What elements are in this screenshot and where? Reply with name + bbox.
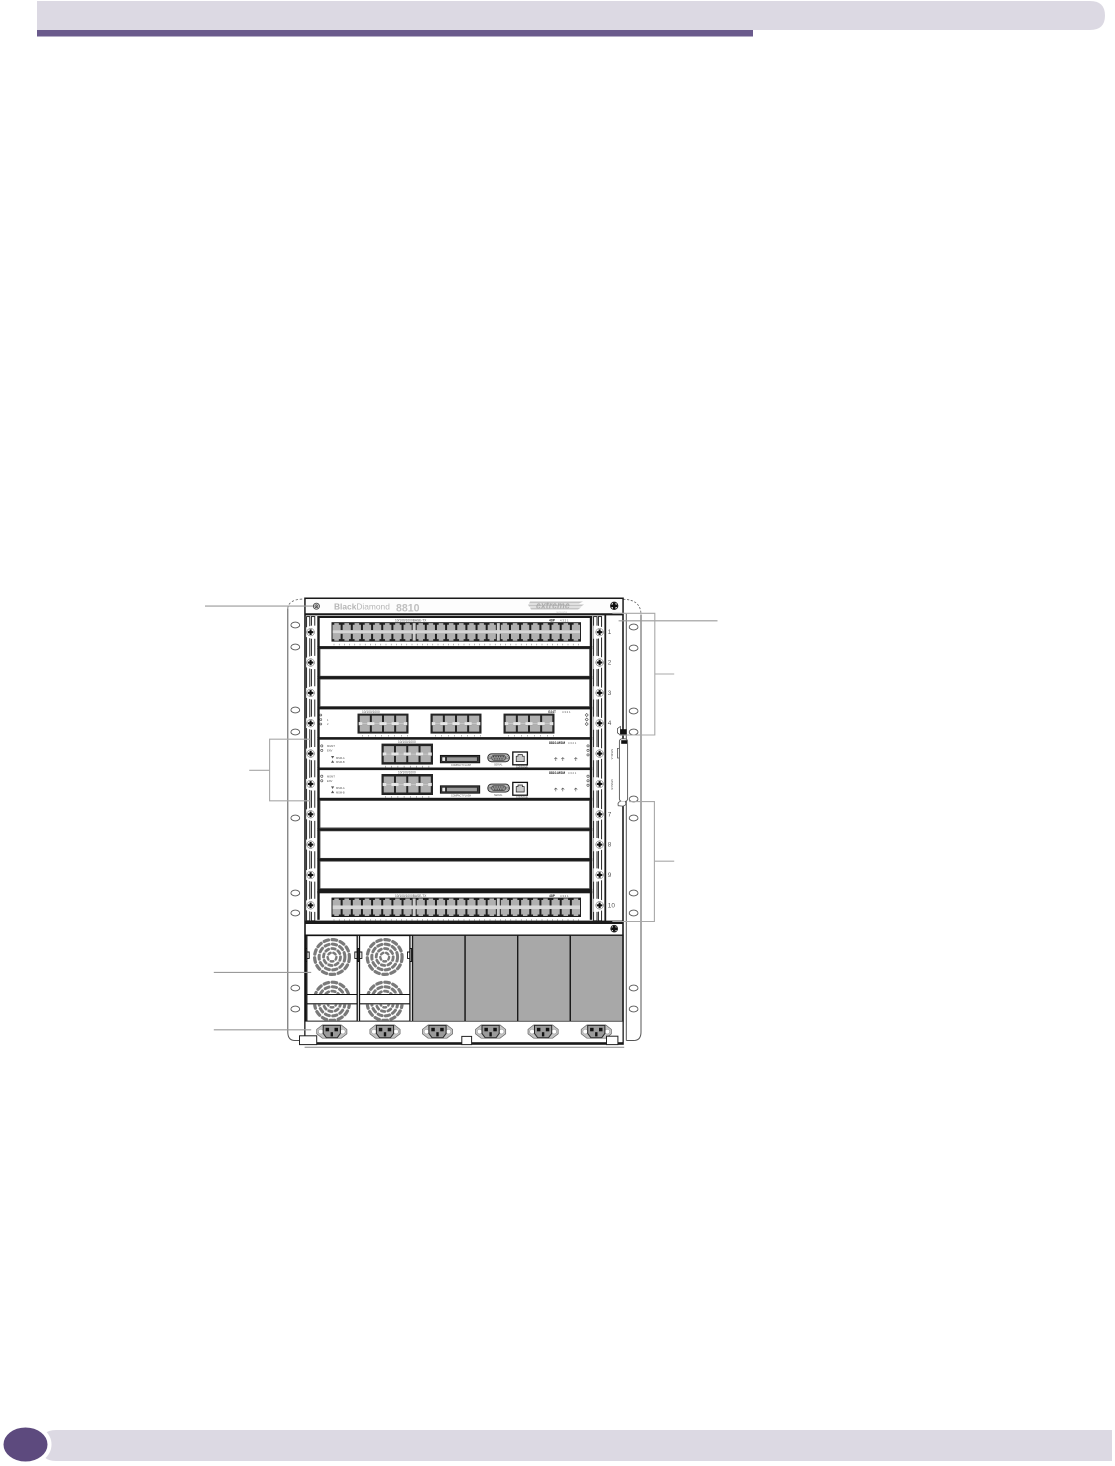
svg-text:SERIAL: SERIAL [494, 794, 503, 797]
svg-text:4 3 2 1: 4 3 2 1 [568, 771, 577, 775]
svg-text:MSM-B: MSM-B [610, 779, 614, 789]
svg-text:4 3 2 1: 4 3 2 1 [562, 710, 571, 714]
svg-text:10/100/1000: 10/100/1000 [398, 770, 416, 774]
svg-text:4 3 2 1: 4 3 2 1 [568, 741, 577, 745]
svg-text:COMPACT FLASH: COMPACT FLASH [451, 764, 471, 767]
svg-text:10/100/1000BASE-TX: 10/100/1000BASE-TX [395, 618, 427, 622]
svg-text:48P: 48P [549, 618, 556, 622]
svg-text:48P: 48P [549, 894, 556, 898]
svg-text:3: 3 [608, 690, 612, 697]
svg-text:MSM-B: MSM-B [336, 790, 345, 794]
svg-text:8810-MSM: 8810-MSM [549, 771, 565, 775]
svg-text:networks: networks [556, 610, 568, 614]
svg-text:CONSOLE: CONSOLE [516, 796, 528, 799]
svg-text:10: 10 [608, 902, 616, 909]
svg-text:MGMT: MGMT [327, 744, 335, 748]
svg-text:SERIAL: SERIAL [494, 763, 503, 766]
svg-text:8810: 8810 [396, 603, 420, 615]
svg-text:10/100/1000BASE-TX: 10/100/1000BASE-TX [395, 894, 427, 898]
svg-text:10/100/1000: 10/100/1000 [398, 740, 416, 744]
svg-text:7: 7 [608, 811, 612, 818]
svg-text:MSM-B: MSM-B [336, 760, 345, 764]
svg-text:CONSOLE: CONSOLE [516, 766, 528, 769]
svg-text:2: 2 [608, 660, 612, 667]
svg-text:9: 9 [608, 872, 612, 879]
svg-text:MSM-A: MSM-A [610, 749, 614, 760]
svg-text:10/100/1000: 10/100/1000 [362, 710, 380, 714]
svg-text:1: 1 [608, 629, 612, 636]
svg-text:MSM-A: MSM-A [336, 786, 345, 790]
svg-text:8: 8 [608, 842, 612, 849]
svg-text:MGMT: MGMT [327, 775, 335, 779]
svg-text:ENV: ENV [327, 779, 333, 783]
svg-text:MSM-A: MSM-A [336, 756, 345, 760]
svg-text:ENV: ENV [327, 749, 333, 753]
svg-text:BlackDiamond: BlackDiamond [334, 602, 390, 612]
svg-text:4: 4 [608, 720, 612, 727]
svg-text:COMPACT FLASH: COMPACT FLASH [451, 795, 471, 798]
svg-text:4 3 2 1: 4 3 2 1 [560, 894, 569, 898]
svg-text:4 3 2 1: 4 3 2 1 [560, 618, 569, 622]
svg-text:8810-MSM: 8810-MSM [549, 741, 565, 745]
